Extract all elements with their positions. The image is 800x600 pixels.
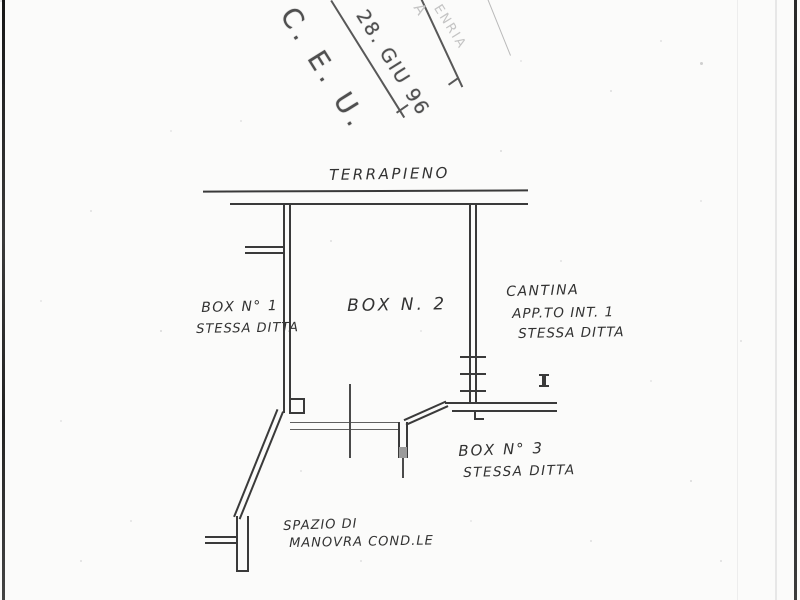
stamp-date-text: 28. GIU 96	[351, 6, 434, 120]
label-spazio-line1: SPAZIO DI	[283, 516, 358, 534]
label-cantina-line3: STESSA DITTA	[518, 324, 625, 342]
box2-left-wall-outer	[283, 204, 285, 413]
label-box1-line1: BOX N° 1	[201, 298, 279, 316]
box2-bottom-threshold	[290, 422, 400, 430]
bolt-symbol-bottom	[539, 385, 549, 387]
left-duct-stub	[245, 246, 284, 254]
scanned-floor-plan-page: C. E. U. 28. GIU 96 A ENRIA TERRAPIENO B…	[0, 0, 800, 600]
label-cantina-line1: CANTINA	[506, 282, 579, 300]
junction-pillar-hatch	[399, 447, 407, 458]
right-wall-tick-1	[460, 356, 486, 358]
label-box3-line1: BOX N° 3	[458, 439, 544, 460]
label-box2: BOX N. 2	[347, 294, 447, 316]
bottom-wall-strip	[236, 516, 249, 572]
stamp-stray-dot	[700, 62, 703, 65]
left-diagonal-wall	[233, 409, 284, 520]
stamp-faint-text: ENRIA	[430, 2, 469, 52]
scan-streak-2	[775, 0, 777, 600]
right-wall-tick-3	[460, 390, 486, 392]
right-wall-tick-2	[460, 373, 486, 375]
right-diagonal-wall	[404, 401, 449, 426]
box2-left-wall-inner	[289, 204, 291, 400]
right-wall-top-line	[445, 402, 557, 404]
section-line	[349, 384, 351, 458]
stamp-bracket-tick-right	[448, 77, 459, 86]
right-wall-step-horizontal	[474, 418, 484, 420]
label-box3-line2: STESSA DITTA	[463, 462, 576, 481]
scan-streak-1	[737, 0, 738, 600]
terrapieno-wall-line	[203, 189, 528, 192]
junction-thin-line	[402, 458, 404, 478]
upper-wall-line	[230, 203, 528, 205]
label-cantina-line2: APP.TO INT. 1	[512, 304, 614, 322]
bottom-left-duct-stub	[205, 536, 236, 544]
label-terrapieno: TERRAPIENO	[329, 164, 450, 184]
scan-right-edge	[794, 0, 797, 600]
stamp-faint-line	[486, 0, 511, 56]
scan-left-edge	[2, 0, 5, 600]
right-wall-bottom-line	[452, 410, 557, 412]
left-wall-notch	[289, 398, 305, 414]
label-spazio-line2: MANOVRA COND.LE	[289, 533, 434, 551]
